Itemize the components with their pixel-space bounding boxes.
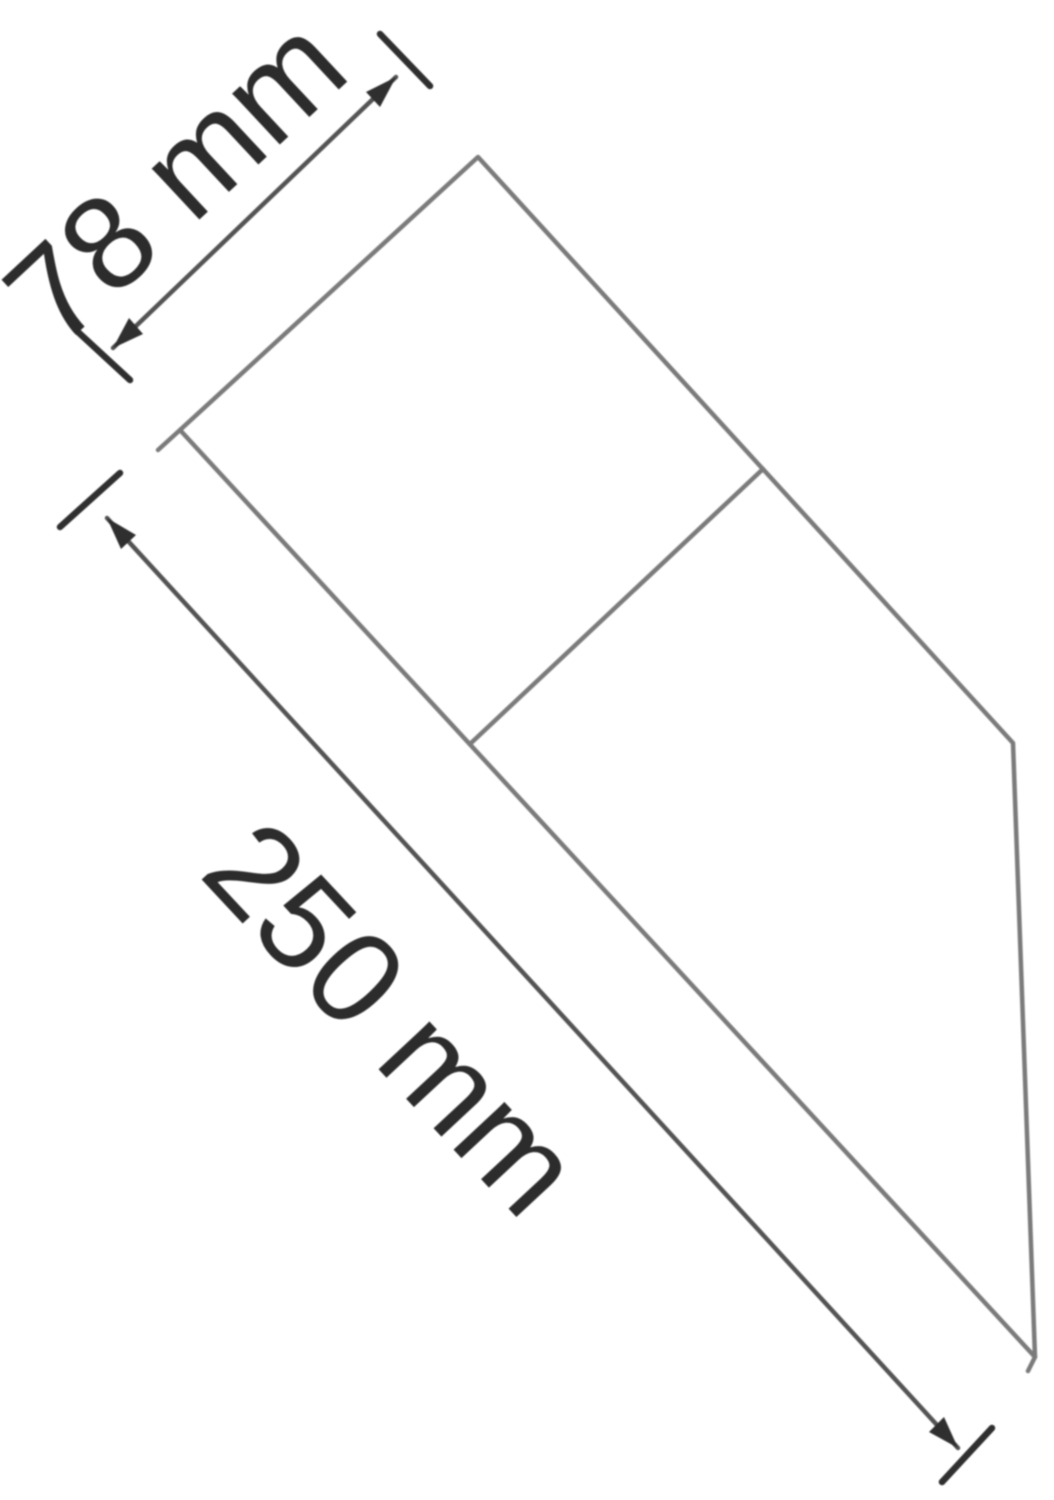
dimension-label-78mm: 78 mm <box>0 0 373 371</box>
fixture-shape <box>158 157 1035 1371</box>
corner-overshoot-bottom <box>1028 1357 1035 1371</box>
dimension-length-250mm: 250 mm <box>60 473 992 1482</box>
corner-overshoot-left <box>158 430 180 450</box>
dimension-label-250mm: 250 mm <box>177 794 610 1243</box>
fixture-face-divider-line <box>470 469 763 744</box>
dimension-width-78mm: 78 mm <box>0 0 430 380</box>
end-tick-78mm-upper <box>380 34 430 86</box>
dimension-line-250mm <box>107 518 958 1448</box>
dimension-diagram: 78 mm 250 mm <box>0 0 1054 1500</box>
fixture-outline <box>180 157 1035 1357</box>
end-tick-250mm-upper <box>60 473 120 527</box>
diagram-canvas: 78 mm 250 mm <box>0 0 1054 1500</box>
